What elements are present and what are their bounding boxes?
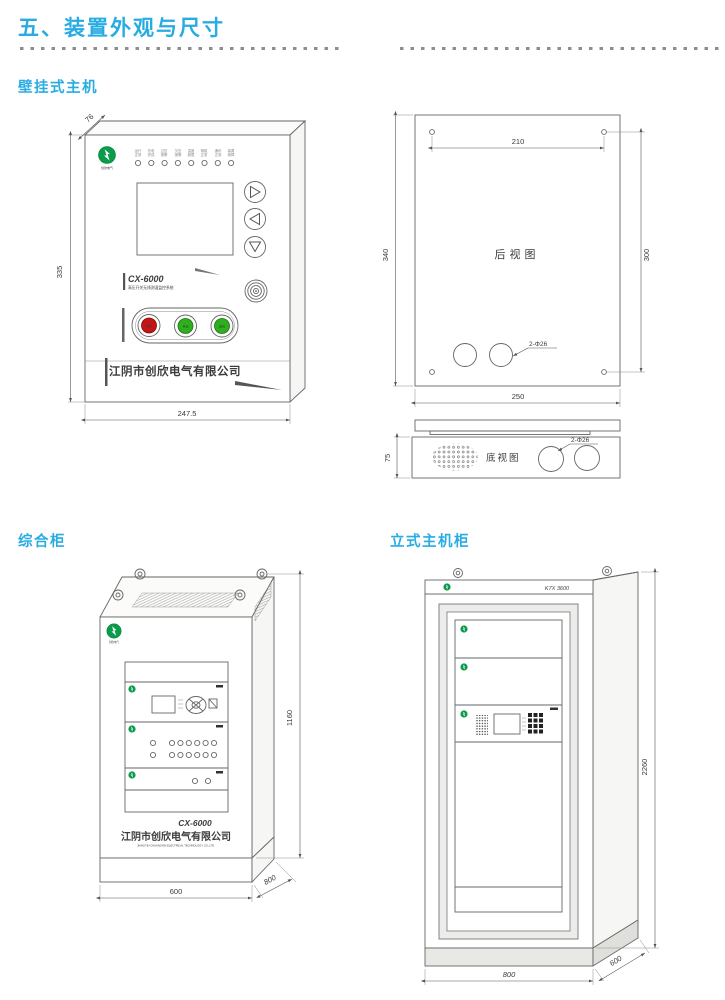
rear-view-title: 后视图: [495, 247, 540, 261]
dim-800: 800: [503, 970, 516, 979]
dim-340: 340: [381, 249, 390, 262]
dim-75: 75: [383, 454, 392, 462]
dim-2260: 2260: [640, 759, 649, 776]
section-label-cabinet: 综合柜: [18, 530, 66, 551]
rear-panel: 后视图 2-Φ26: [415, 115, 620, 386]
dim-800: 800: [262, 872, 278, 886]
front-logo-text: 创欣电气: [101, 165, 113, 170]
svg-text:手动: 手动: [182, 323, 188, 328]
led-caption: 欠压 报警: [173, 150, 183, 158]
section-label-vertical: 立式主机柜: [390, 530, 470, 551]
vent-dots: [432, 444, 478, 471]
dim-335: 335: [55, 266, 64, 279]
model-subtext: 高压开关无线测温监控系统: [128, 285, 174, 290]
dim-247-5: 247.5: [178, 409, 197, 418]
comprehensive-cabinet-drawing: 创欣电气: [30, 555, 360, 955]
cabinet-company-en: JIANGYIN CHUANGXIN ELECTRICAL TECHNOLOGY…: [137, 844, 215, 848]
led-caption: 充电 完成: [146, 150, 156, 158]
led-caption: 通讯 正常: [213, 150, 223, 158]
svg-text:蜂鸣: 蜂鸣: [219, 323, 225, 328]
led-caption: 过压 报警: [159, 150, 169, 158]
led-caption: 温度 超限: [186, 150, 196, 158]
led-caption: 运行 正常: [133, 150, 143, 158]
dotted-rule-left: [20, 47, 340, 50]
wall-front-svg: 创欣电气 CX-6000 高压开关无线测温监控系统: [45, 110, 345, 440]
dotted-rule-right: [400, 47, 722, 50]
front-box-outline: [85, 121, 305, 402]
top-vent: [132, 593, 238, 607]
buzzer-button: 蜂鸣: [211, 315, 233, 337]
cabinet-logo: 创欣电气: [107, 624, 121, 644]
wall-rear-view-drawing: 后视图 2-Φ26 210 340 300 250: [385, 105, 725, 495]
bottom-view-title: 底视图: [486, 452, 521, 464]
section-label-wall-mounted: 壁挂式主机: [18, 76, 98, 97]
svg-text:创欣电气: 创欣电气: [109, 640, 120, 644]
vert-model: K7X 3600: [545, 586, 570, 592]
cabinet-model: CX-6000: [178, 818, 212, 828]
cabinet-box: [100, 569, 274, 858]
led-caption: 装置 故障: [226, 150, 236, 158]
power-button: 电源: [138, 315, 160, 337]
wall-rear-svg: 后视图 2-Φ26 210 340 300 250: [385, 105, 725, 495]
dim-210: 210: [512, 137, 525, 146]
dim-76: 76: [83, 112, 95, 124]
cabinet-company: 江阴市创欣电气有限公司: [121, 830, 231, 843]
vert-module1-logo: [460, 625, 467, 632]
dim-250: 250: [512, 392, 525, 401]
dim-600: 600: [170, 887, 183, 896]
vert-door: [439, 604, 578, 939]
wall-front-view-drawing: 创欣电气 CX-6000 高压开关无线测温监控系统: [45, 110, 345, 440]
front-logo: 创欣电气: [99, 147, 116, 170]
model-text: CX-6000: [128, 274, 164, 284]
svg-text:电源: 电源: [146, 323, 152, 328]
dim-300: 300: [642, 249, 651, 262]
company-text: 江阴市创欣电气有限公司: [109, 364, 241, 378]
page-title: 五、装置外观与尺寸: [18, 12, 225, 42]
vertical-cabinet-drawing: K7X 3600: [395, 555, 725, 1000]
dim-1160: 1160: [285, 710, 294, 726]
vertical-svg: K7X 3600: [395, 555, 725, 1000]
led-caption: 储能 正常: [199, 150, 209, 158]
lcd-screen: [137, 183, 233, 255]
bottom-holes-note: 2-Φ26: [571, 437, 590, 444]
bottom-view: 底视图 2-Φ26 75: [383, 420, 620, 478]
cabinet-svg: 创欣电气: [30, 555, 360, 955]
manual-button: 手动: [175, 315, 197, 337]
manual-page: 五、装置外观与尺寸 壁挂式主机 综合柜 立式主机柜 创欣电气: [0, 0, 725, 1000]
vert-module2-logo: [460, 663, 467, 670]
rear-holes-note: 2-Φ26: [529, 341, 548, 348]
